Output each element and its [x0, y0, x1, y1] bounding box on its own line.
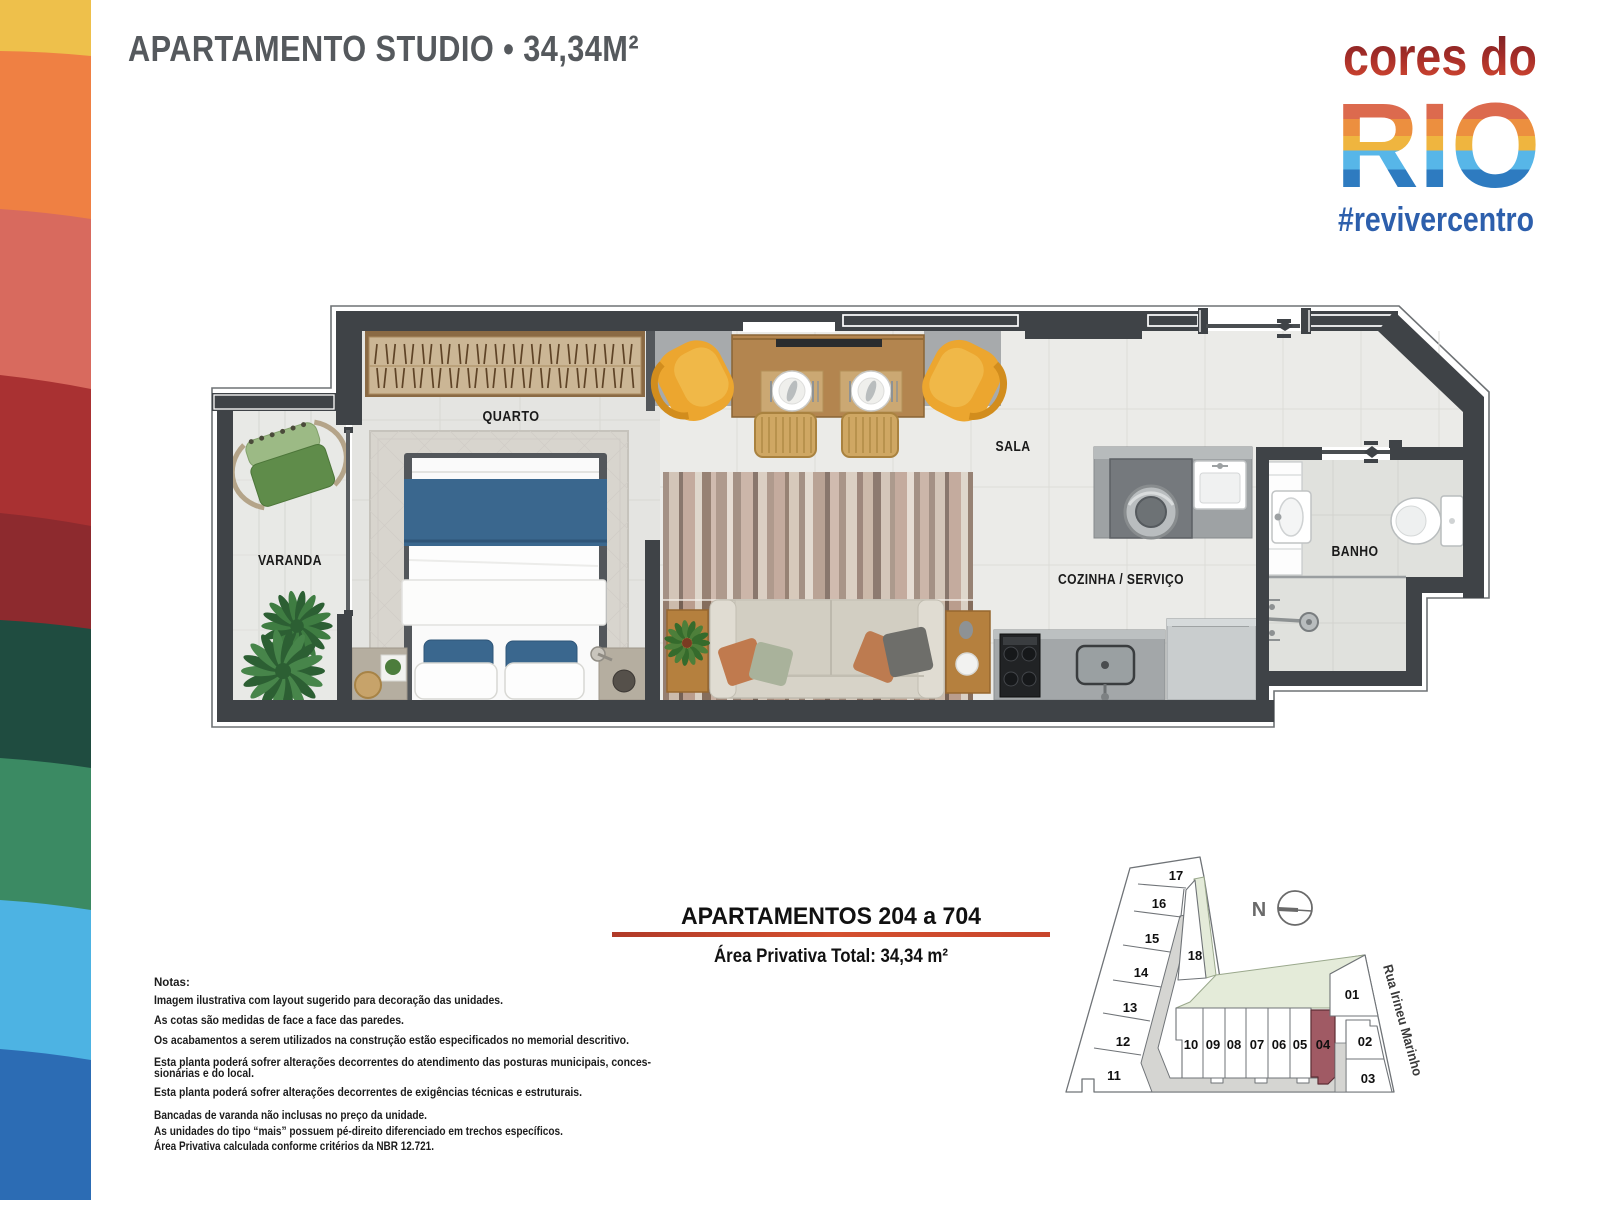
- svg-text:#revivercentro: #revivercentro: [1338, 201, 1534, 239]
- svg-text:18: 18: [1188, 948, 1202, 963]
- svg-text:RIO: RIO: [1336, 77, 1541, 213]
- svg-text:11: 11: [1107, 1068, 1121, 1083]
- svg-text:03: 03: [1361, 1071, 1375, 1086]
- svg-text:15: 15: [1145, 931, 1159, 946]
- svg-text:16: 16: [1152, 896, 1166, 911]
- svg-text:QUARTO: QUARTO: [483, 409, 540, 425]
- svg-text:VARANDA: VARANDA: [258, 553, 322, 569]
- svg-text:As cotas são medidas de face a: As cotas são medidas de face a face das …: [154, 1015, 404, 1027]
- svg-text:14: 14: [1134, 965, 1149, 980]
- svg-text:17: 17: [1169, 868, 1183, 883]
- svg-text:Os acabamentos a serem utiliza: Os acabamentos a serem utilizados na con…: [154, 1035, 629, 1047]
- svg-text:Bancadas de varanda não inclus: Bancadas de varanda não inclusas no preç…: [154, 1110, 427, 1122]
- svg-text:13: 13: [1123, 1000, 1137, 1015]
- svg-text:02: 02: [1358, 1034, 1372, 1049]
- svg-text:Imagem ilustrativa com layout: Imagem ilustrativa com layout sugerido p…: [154, 995, 503, 1007]
- svg-text:05: 05: [1293, 1037, 1307, 1052]
- svg-text:COZINHA / SERVIÇO: COZINHA / SERVIÇO: [1058, 572, 1184, 588]
- svg-text:Esta planta poderá sofrer alte: Esta planta poderá sofrer alterações dec…: [154, 1087, 582, 1099]
- svg-text:sionárias e do local.: sionárias e do local.: [154, 1068, 254, 1080]
- svg-text:06: 06: [1272, 1037, 1286, 1052]
- svg-text:08: 08: [1227, 1037, 1241, 1052]
- svg-text:APARTAMENTOS 204 a 704: APARTAMENTOS 204 a 704: [681, 903, 982, 930]
- svg-text:N: N: [1252, 899, 1266, 921]
- svg-text:07: 07: [1250, 1037, 1264, 1052]
- svg-text:04: 04: [1316, 1037, 1331, 1052]
- svg-text:Área Privativa calculada confo: Área Privativa calculada conforme critér…: [154, 1140, 434, 1153]
- svg-text:APARTAMENTO STUDIO • 34,34M²: APARTAMENTO STUDIO • 34,34M²: [128, 28, 639, 69]
- svg-text:Área Privativa Total: 34,34 m²: Área Privativa Total: 34,34 m²: [714, 945, 948, 967]
- svg-text:BANHO: BANHO: [1332, 544, 1379, 560]
- svg-text:As unidades do tipo “mais” pos: As unidades do tipo “mais” possuem pé-di…: [154, 1126, 563, 1138]
- svg-text:12: 12: [1116, 1034, 1130, 1049]
- svg-text:Notas:: Notas:: [154, 977, 190, 989]
- svg-text:09: 09: [1206, 1037, 1220, 1052]
- svg-text:01: 01: [1345, 987, 1359, 1002]
- svg-text:SALA: SALA: [996, 439, 1031, 455]
- svg-text:10: 10: [1184, 1037, 1198, 1052]
